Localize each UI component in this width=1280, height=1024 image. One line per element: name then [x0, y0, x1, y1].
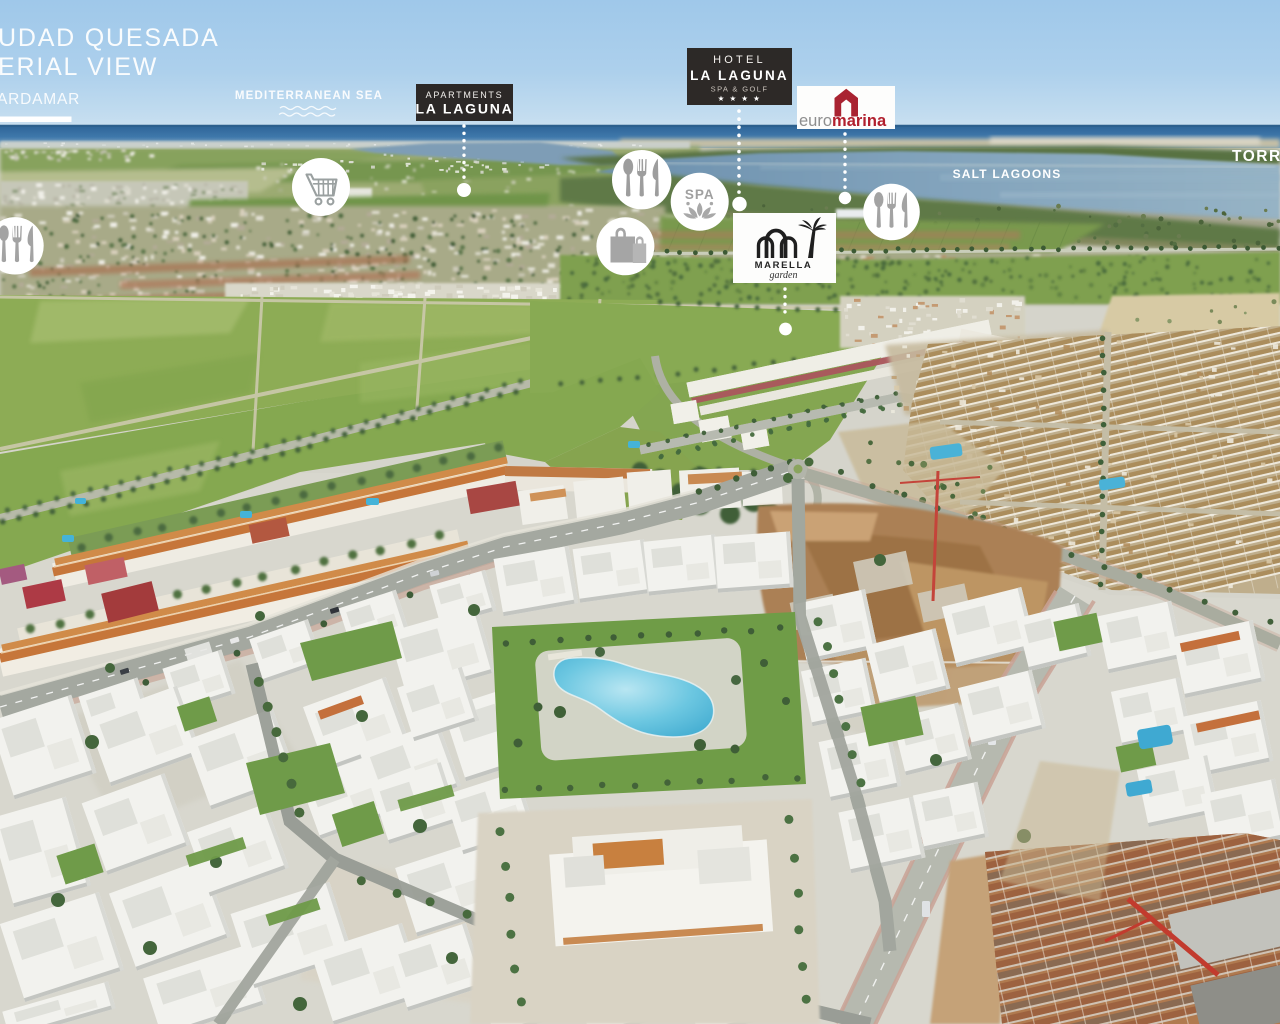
svg-text:MEDITERRANEAN SEA: MEDITERRANEAN SEA [235, 90, 383, 102]
svg-text:euromarina: euromarina [799, 112, 887, 130]
svg-text:HOTEL: HOTEL [713, 54, 766, 66]
svg-text:ERIAL VIEW: ERIAL VIEW [0, 53, 158, 81]
svg-text:TORREVIEJA: TORREVIEJA [1232, 148, 1280, 165]
svg-text:UDAD QUESADA: UDAD QUESADA [0, 24, 220, 52]
svg-text:SALT LAGOONS: SALT LAGOONS [953, 167, 1062, 181]
svg-text:LA LAGUNA: LA LAGUNA [690, 68, 789, 83]
svg-text:APARTMENTS: APARTMENTS [426, 90, 504, 100]
svg-text:SPA & GOLF: SPA & GOLF [711, 85, 769, 94]
svg-text:garden: garden [770, 270, 798, 281]
svg-text:ARDAMAR: ARDAMAR [0, 91, 80, 108]
svg-text:SPA: SPA [685, 187, 715, 202]
svg-text:★ ★ ★ ★: ★ ★ ★ ★ [718, 94, 762, 103]
svg-text:LA LAGUNA: LA LAGUNA [415, 101, 513, 117]
